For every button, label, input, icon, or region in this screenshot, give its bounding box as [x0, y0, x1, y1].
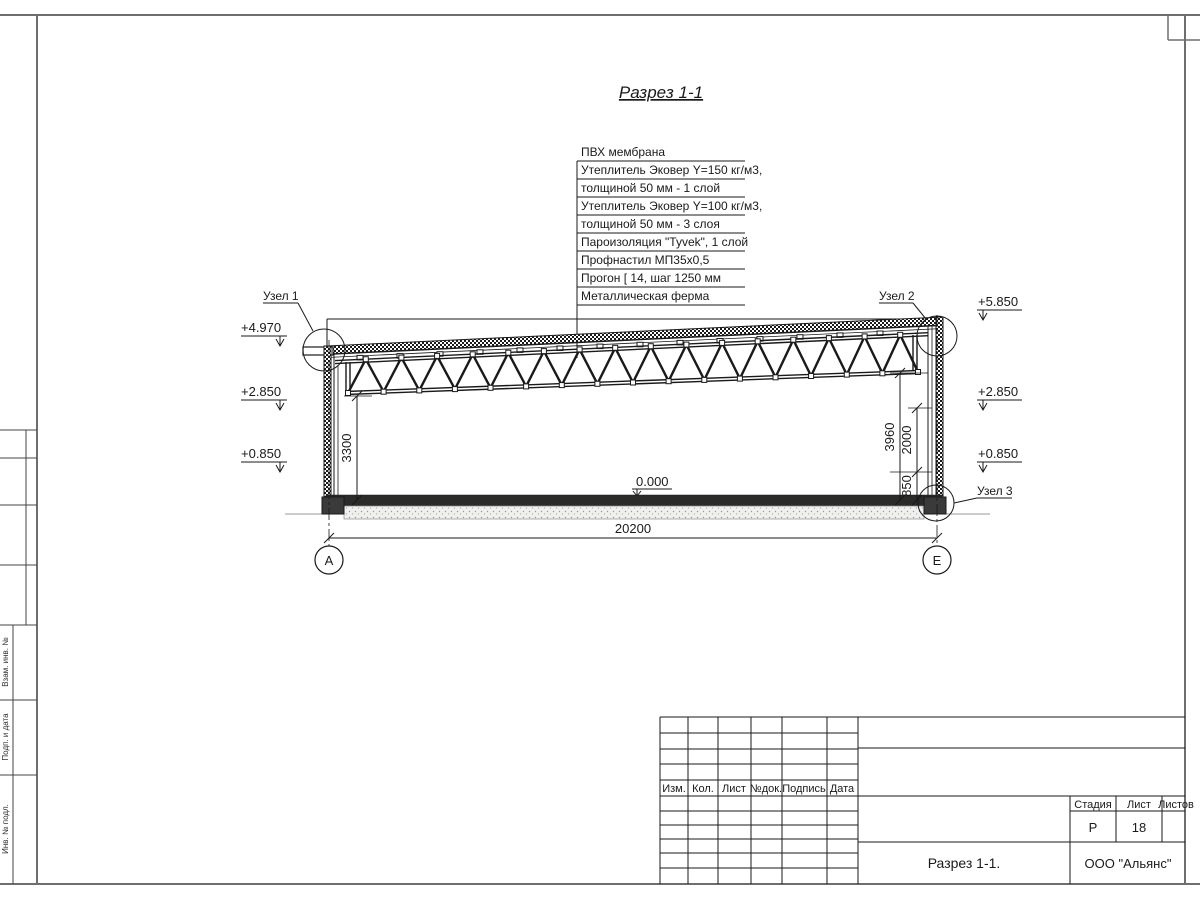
- right-wall: [928, 317, 943, 500]
- axis-label-right: Е: [933, 553, 942, 568]
- material-line-2: Утеплитель Эковер Y=150 кг/м3,: [581, 163, 762, 177]
- node-label-1: Узел 1: [263, 289, 299, 303]
- node-label-2: Узел 2: [879, 289, 915, 303]
- sheet-value: 18: [1132, 820, 1146, 835]
- side-label-3: Инв. № подл.: [1, 804, 10, 854]
- materials-callout: ПВХ мембрана Утеплитель Эковер Y=150 кг/…: [577, 145, 762, 358]
- foundation-pad-right: [924, 497, 946, 514]
- dim-2000: 2000: [899, 426, 914, 455]
- rev-header-data: Дата: [830, 783, 855, 795]
- section-title: Разрез 1-1: [619, 83, 703, 102]
- drawing-sheet: Взам. инв. № Подп. и дата Инв. № подл. Р…: [0, 0, 1200, 900]
- elev-right-top: +5.850: [978, 294, 1018, 309]
- floor-slab: [285, 495, 990, 519]
- roof-package: [303, 317, 943, 360]
- material-line-1: ПВХ мембрана: [581, 145, 665, 159]
- elev-right-mid: +2.850: [978, 384, 1018, 399]
- axis-label-left: А: [325, 553, 334, 568]
- elev-left-mid: +2.850: [241, 384, 281, 399]
- sheet-label: Лист: [1127, 799, 1151, 811]
- stage-label: Стадия: [1074, 799, 1112, 811]
- material-line-4: Утеплитель Эковер Y=100 кг/м3,: [581, 199, 762, 213]
- node-label-3: Узел 3: [977, 484, 1013, 498]
- company-name: ООО "Альянс": [1085, 856, 1172, 871]
- rev-header-kol: Кол.: [692, 783, 714, 795]
- dim-3300: 3300: [339, 434, 354, 463]
- material-line-8: Прогон [ 14, шаг 1250 мм: [581, 271, 721, 285]
- rev-header-izm: Изм.: [662, 783, 686, 795]
- rev-header-ndok: №док.: [750, 783, 782, 795]
- elev-left-top: +4.970: [241, 320, 281, 335]
- titleblock-drawing-title: Разрез 1-1.: [928, 855, 1001, 871]
- elev-floor: 0.000: [636, 474, 669, 489]
- material-line-5: толщиной 50 мм - 3 слоя: [581, 217, 720, 231]
- rev-header-podpis: Подпись: [782, 783, 826, 795]
- dim-3960: 3960: [882, 423, 897, 452]
- sheets-label: Листов: [1158, 799, 1194, 811]
- left-wall: [324, 346, 338, 500]
- rev-header-list: Лист: [722, 783, 746, 795]
- side-label-2: Подп. и дата: [1, 713, 10, 761]
- material-line-3: толщиной 50 мм - 1 слой: [581, 181, 720, 195]
- material-line-9: Металлическая ферма: [581, 289, 710, 303]
- dim-850: 850: [899, 475, 914, 497]
- material-line-6: Пароизоляция "Tyvek", 1 слой: [581, 235, 748, 249]
- elev-left-low: +0.850: [241, 446, 281, 461]
- elev-right-low: +0.850: [978, 446, 1018, 461]
- material-line-7: Профнастил МП35х0,5: [581, 253, 710, 267]
- stage-value: Р: [1089, 820, 1098, 835]
- foundation-pad-left: [322, 497, 344, 514]
- side-label-1: Взам. инв. №: [1, 637, 10, 687]
- span-dim-text: 20200: [615, 521, 651, 536]
